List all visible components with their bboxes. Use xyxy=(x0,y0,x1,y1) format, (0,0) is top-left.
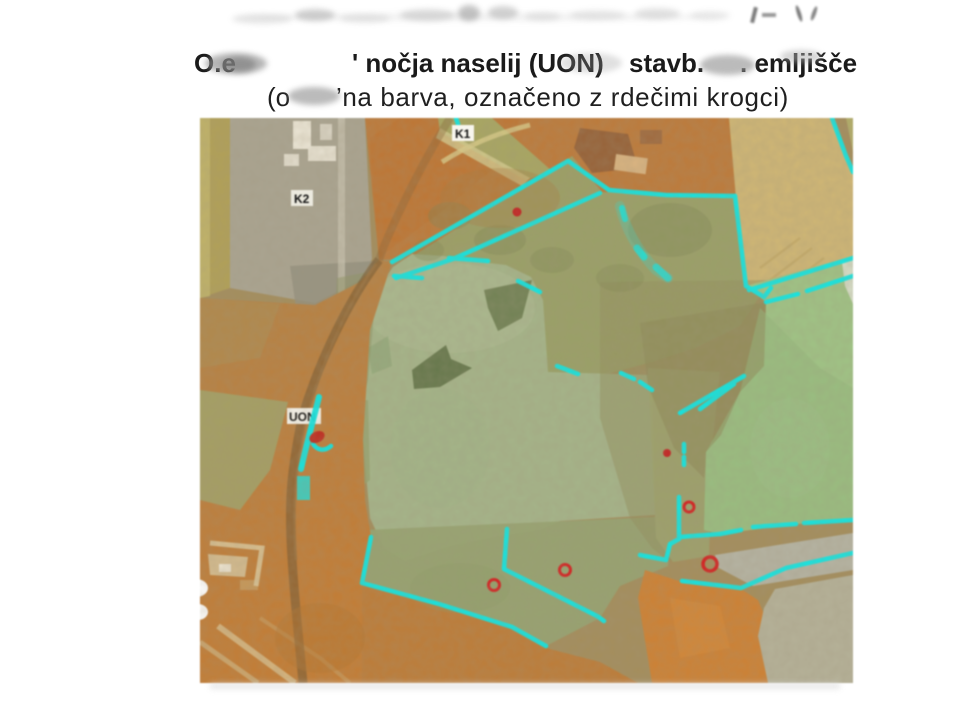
svg-text:K2: K2 xyxy=(294,192,310,206)
svg-text:K1: K1 xyxy=(455,127,471,141)
